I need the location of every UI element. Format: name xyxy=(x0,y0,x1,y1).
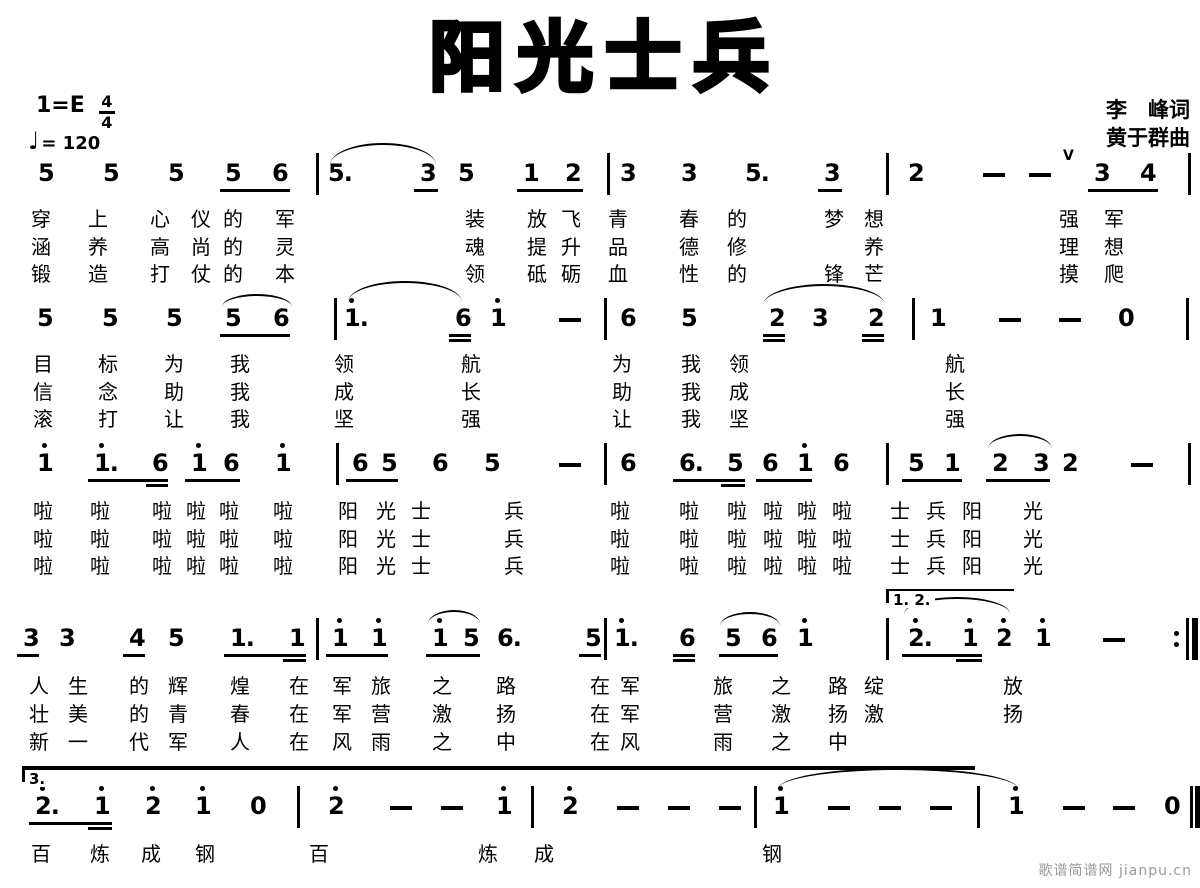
lyric-char: 助 xyxy=(164,381,184,403)
lyric-char: 高 xyxy=(150,236,170,258)
lyric-char: 领 xyxy=(334,353,354,375)
lyric-char: 阳 xyxy=(338,528,358,550)
octave-dot xyxy=(802,618,807,623)
lyric-char: 营 xyxy=(713,703,733,725)
lyric-char: 啦 xyxy=(90,500,110,522)
lyric-char: 春 xyxy=(679,208,699,230)
note: 2 xyxy=(868,307,884,329)
note: 1 xyxy=(37,452,53,474)
beam-line xyxy=(283,659,306,662)
note: 2 xyxy=(562,795,578,817)
lyric-char: 让 xyxy=(612,408,632,430)
octave-dot xyxy=(913,618,918,623)
beam-line xyxy=(29,822,112,825)
beam-line xyxy=(673,654,695,657)
lyric-char: 一 xyxy=(68,731,88,753)
lyric-char: 的 xyxy=(223,236,243,258)
note: 6 xyxy=(679,627,695,649)
note: 6. xyxy=(679,452,703,474)
barline xyxy=(604,618,607,660)
repeat-dot xyxy=(1174,631,1179,636)
note: 6 xyxy=(620,452,636,474)
duration-dash xyxy=(1029,173,1051,177)
lyric-char: 领 xyxy=(465,263,485,285)
duration-dash xyxy=(828,806,850,810)
barline xyxy=(1186,618,1189,660)
lyric-char: 啦 xyxy=(797,500,817,522)
lyric-char: 锋 xyxy=(824,263,844,285)
lyric-char: 营 xyxy=(371,703,391,725)
beam-line xyxy=(220,334,290,337)
lyric-char: 在 xyxy=(289,703,309,725)
lyric-char: 炼 xyxy=(90,843,110,865)
breath-mark: V xyxy=(1063,149,1074,163)
lyric-char: 修 xyxy=(727,236,747,258)
lyric-char: 兵 xyxy=(926,528,946,550)
lyric-char: 长 xyxy=(461,381,481,403)
lyric-char: 路 xyxy=(828,675,848,697)
lyric-char: 军 xyxy=(620,703,640,725)
lyric-char: 啦 xyxy=(610,555,630,577)
duration-dash xyxy=(617,806,639,810)
note: 5 xyxy=(103,162,119,184)
lyric-char: 啦 xyxy=(679,528,699,550)
lyric-char: 光 xyxy=(1023,500,1043,522)
lyric-char: 的 xyxy=(223,263,243,285)
beam-line xyxy=(719,654,778,657)
lyric-char: 啦 xyxy=(219,500,239,522)
lyric-char: 摸 xyxy=(1059,263,1079,285)
score-layer: 555565.3512335.3234V穿上心仪的军装放飞青春的梦想强军涵养高尚… xyxy=(0,0,1200,888)
lyric-char: 我 xyxy=(230,353,250,375)
note: 3 xyxy=(620,162,636,184)
octave-dot xyxy=(501,786,506,791)
lyric-char: 中 xyxy=(828,731,848,753)
volta-bracket: 3. xyxy=(22,766,975,785)
note: 6 xyxy=(432,452,448,474)
lyric-char: 在 xyxy=(590,731,610,753)
note: 1 xyxy=(191,452,207,474)
beam-line xyxy=(818,189,842,192)
lyric-char: 辉 xyxy=(168,675,188,697)
note: 5 xyxy=(585,627,601,649)
note: 5 xyxy=(727,452,743,474)
note: 1 xyxy=(432,627,448,649)
slur-arc xyxy=(348,281,462,302)
lyric-char: 阳 xyxy=(962,500,982,522)
lyric-char: 长 xyxy=(945,381,965,403)
lyric-char: 强 xyxy=(1059,208,1079,230)
lyric-char: 啦 xyxy=(33,555,53,577)
lyric-char: 兵 xyxy=(504,555,524,577)
lyric-char: 路 xyxy=(496,675,516,697)
beam-line xyxy=(763,334,785,337)
octave-dot xyxy=(567,786,572,791)
lyric-char: 钢 xyxy=(195,843,215,865)
duration-dash xyxy=(441,806,463,810)
note: 6 xyxy=(152,452,168,474)
lyric-char: 阳 xyxy=(338,555,358,577)
lyric-char: 啦 xyxy=(797,555,817,577)
lyric-char: 光 xyxy=(376,500,396,522)
lyric-char: 人 xyxy=(230,731,250,753)
lyric-char: 阳 xyxy=(962,555,982,577)
lyric-char: 士 xyxy=(411,500,431,522)
lyric-char: 成 xyxy=(334,381,354,403)
note: 5 xyxy=(225,307,241,329)
lyric-char: 养 xyxy=(864,236,884,258)
beam-line xyxy=(986,479,1050,482)
octave-dot xyxy=(42,443,47,448)
beam-line xyxy=(956,659,982,662)
lyric-char: 钢 xyxy=(762,843,782,865)
lyric-char: 仗 xyxy=(191,263,211,285)
lyric-char: 领 xyxy=(729,353,749,375)
note: 1 xyxy=(289,627,305,649)
lyric-char: 新 xyxy=(29,731,49,753)
lyric-char: 兵 xyxy=(504,528,524,550)
lyric-char: 啦 xyxy=(152,555,172,577)
lyric-char: 啦 xyxy=(33,500,53,522)
lyric-char: 人 xyxy=(29,675,49,697)
duration-dash xyxy=(983,173,1005,177)
duration-dash xyxy=(390,806,412,810)
beam-line xyxy=(414,189,438,192)
note: 5 xyxy=(168,162,184,184)
beam-line xyxy=(88,479,168,482)
beam-line xyxy=(673,479,745,482)
lyric-char: 爬 xyxy=(1104,263,1124,285)
lyric-char: 信 xyxy=(33,381,53,403)
note: 2 xyxy=(992,452,1008,474)
barline xyxy=(316,153,319,195)
beam-line xyxy=(902,654,982,657)
beam-line xyxy=(220,189,290,192)
lyric-char: 品 xyxy=(608,236,628,258)
lyric-char: 之 xyxy=(432,731,452,753)
note: 5 xyxy=(38,162,54,184)
note: 3 xyxy=(681,162,697,184)
octave-dot xyxy=(1040,618,1045,623)
note: 5 xyxy=(484,452,500,474)
note: 1 xyxy=(962,627,978,649)
lyric-char: 航 xyxy=(945,353,965,375)
beam-line xyxy=(902,479,962,482)
lyric-char: 啦 xyxy=(186,500,206,522)
lyric-char: 美 xyxy=(68,703,88,725)
lyric-char: 阳 xyxy=(962,528,982,550)
octave-dot xyxy=(99,786,104,791)
lyric-char: 上 xyxy=(88,208,108,230)
lyric-char: 扬 xyxy=(828,703,848,725)
barline xyxy=(912,298,915,340)
note: 1 xyxy=(332,627,348,649)
note: 6 xyxy=(352,452,368,474)
duration-dash xyxy=(930,806,952,810)
lyric-char: 标 xyxy=(98,353,118,375)
lyric-char: 军 xyxy=(168,731,188,753)
lyric-char: 念 xyxy=(98,381,118,403)
note: 5. xyxy=(745,162,769,184)
lyric-char: 士 xyxy=(890,528,910,550)
lyric-char: 啦 xyxy=(610,500,630,522)
note: 1. xyxy=(344,307,368,329)
lyric-char: 代 xyxy=(129,731,149,753)
note: 2 xyxy=(1062,452,1078,474)
lyric-char: 想 xyxy=(1104,236,1124,258)
barline xyxy=(1186,298,1189,340)
lyric-char: 旅 xyxy=(371,675,391,697)
lyric-char: 滚 xyxy=(33,408,53,430)
lyric-char: 的 xyxy=(727,208,747,230)
lyric-char: 的 xyxy=(129,675,149,697)
lyric-char: 造 xyxy=(88,263,108,285)
lyric-char: 成 xyxy=(141,843,161,865)
note: 1 xyxy=(94,795,110,817)
lyric-char: 我 xyxy=(681,408,701,430)
lyric-char: 青 xyxy=(608,208,628,230)
lyric-char: 啦 xyxy=(679,555,699,577)
lyric-char: 啦 xyxy=(727,528,747,550)
lyric-char: 打 xyxy=(98,408,118,430)
barline xyxy=(607,153,610,195)
watermark-site-link[interactable]: 歌谱简谱网 jianpu.cn xyxy=(1039,860,1192,880)
lyric-char: 士 xyxy=(890,500,910,522)
barline xyxy=(297,786,300,828)
lyric-char: 之 xyxy=(771,675,791,697)
note: 1 xyxy=(496,795,512,817)
lyric-char: 在 xyxy=(590,703,610,725)
lyric-char: 在 xyxy=(289,731,309,753)
beam-line xyxy=(224,654,306,657)
octave-dot xyxy=(99,443,104,448)
lyric-char: 飞 xyxy=(561,208,581,230)
lyric-char: 春 xyxy=(230,703,250,725)
duration-dash xyxy=(719,806,741,810)
note: 5 xyxy=(102,307,118,329)
note: 3 xyxy=(420,162,436,184)
duration-dash xyxy=(1059,318,1081,322)
lyric-char: 强 xyxy=(945,408,965,430)
lyric-char: 兵 xyxy=(926,555,946,577)
lyric-char: 士 xyxy=(411,528,431,550)
lyric-char: 魂 xyxy=(465,236,485,258)
note: 2 xyxy=(328,795,344,817)
duration-dash xyxy=(668,806,690,810)
note: 1 xyxy=(523,162,539,184)
octave-dot xyxy=(1001,618,1006,623)
duration-dash xyxy=(1113,806,1135,810)
lyric-char: 的 xyxy=(727,263,747,285)
barline xyxy=(886,618,889,660)
note: 2 xyxy=(996,627,1012,649)
barline xyxy=(604,443,607,485)
slur-arc xyxy=(330,143,436,165)
octave-dot xyxy=(333,786,338,791)
lyric-char: 风 xyxy=(332,731,352,753)
octave-dot xyxy=(280,443,285,448)
note: 3 xyxy=(812,307,828,329)
lyric-char: 啦 xyxy=(727,555,747,577)
note: 5 xyxy=(458,162,474,184)
lyric-char: 光 xyxy=(1023,528,1043,550)
lyric-char: 放 xyxy=(1003,675,1023,697)
note: 1 xyxy=(773,795,789,817)
lyric-char: 成 xyxy=(729,381,749,403)
beam-line xyxy=(185,479,240,482)
lyric-char: 啦 xyxy=(219,555,239,577)
beam-line xyxy=(579,654,601,657)
lyric-char: 梦 xyxy=(824,208,844,230)
lyric-char: 的 xyxy=(223,208,243,230)
rest-note: 0 xyxy=(250,795,266,817)
beam-line xyxy=(721,484,745,487)
octave-dot xyxy=(150,786,155,791)
duration-dash xyxy=(1063,806,1085,810)
note: 4 xyxy=(1140,162,1156,184)
duration-dash xyxy=(1131,463,1153,467)
note: 1 xyxy=(1008,795,1024,817)
note: 1. xyxy=(614,627,638,649)
note: 5. xyxy=(328,162,352,184)
beam-line xyxy=(862,334,884,337)
beam-line xyxy=(449,334,471,337)
note: 1 xyxy=(1035,627,1051,649)
lyric-char: 在 xyxy=(590,675,610,697)
lyric-char: 军 xyxy=(1104,208,1124,230)
lyric-char: 为 xyxy=(164,353,184,375)
lyric-char: 光 xyxy=(376,555,396,577)
note: 2. xyxy=(908,627,932,649)
note: 2 xyxy=(769,307,785,329)
lyric-char: 扬 xyxy=(496,703,516,725)
lyric-char: 的 xyxy=(129,703,149,725)
note: 3 xyxy=(59,627,75,649)
lyric-char: 百 xyxy=(309,843,329,865)
barline xyxy=(886,153,889,195)
lyric-char: 啦 xyxy=(832,500,852,522)
note: 6 xyxy=(761,627,777,649)
lyric-char: 啦 xyxy=(90,555,110,577)
note: 5 xyxy=(166,307,182,329)
lyric-char: 军 xyxy=(332,703,352,725)
lyric-char: 壮 xyxy=(29,703,49,725)
lyric-char: 啦 xyxy=(763,555,783,577)
note: 6 xyxy=(223,452,239,474)
duration-dash xyxy=(559,318,581,322)
beam-line xyxy=(517,189,583,192)
note: 5 xyxy=(908,452,924,474)
barline xyxy=(316,618,319,660)
barline xyxy=(886,443,889,485)
lyric-char: 为 xyxy=(612,353,632,375)
note: 3 xyxy=(824,162,840,184)
lyric-char: 本 xyxy=(275,263,295,285)
lyric-char: 军 xyxy=(332,675,352,697)
lyric-char: 养 xyxy=(88,236,108,258)
note: 3 xyxy=(23,627,39,649)
barline xyxy=(604,298,607,340)
rest-note: 0 xyxy=(1118,307,1134,329)
volta-label: 3. xyxy=(29,771,49,787)
beam-line xyxy=(449,339,471,342)
note: 5 xyxy=(463,627,479,649)
lyric-char: 灵 xyxy=(275,236,295,258)
beam-line xyxy=(862,339,884,342)
lyric-char: 啦 xyxy=(273,500,293,522)
lyric-char: 啦 xyxy=(832,555,852,577)
beam-line xyxy=(146,484,168,487)
beam-line xyxy=(88,827,112,830)
barline xyxy=(334,298,337,340)
note: 5 xyxy=(725,627,741,649)
slur-arc xyxy=(720,612,780,626)
lyric-char: 我 xyxy=(230,381,250,403)
lyric-char: 军 xyxy=(275,208,295,230)
lyric-char: 尚 xyxy=(191,236,211,258)
lyric-char: 士 xyxy=(890,555,910,577)
beam-line xyxy=(426,654,480,657)
lyric-char: 士 xyxy=(411,555,431,577)
lyric-char: 目 xyxy=(33,353,53,375)
octave-dot xyxy=(337,618,342,623)
lyric-char: 光 xyxy=(376,528,396,550)
lyric-char: 砺 xyxy=(561,263,581,285)
lyric-char: 理 xyxy=(1059,236,1079,258)
note: 1 xyxy=(195,795,211,817)
lyric-char: 兵 xyxy=(926,500,946,522)
note: 5 xyxy=(381,452,397,474)
lyric-char: 青 xyxy=(168,703,188,725)
lyric-char: 光 xyxy=(1023,555,1043,577)
lyric-char: 啦 xyxy=(186,555,206,577)
note: 5 xyxy=(37,307,53,329)
duration-dash xyxy=(1103,638,1125,642)
slur-arc xyxy=(428,610,480,624)
octave-dot xyxy=(495,298,500,303)
note: 4 xyxy=(129,627,145,649)
duration-dash xyxy=(559,463,581,467)
lyric-char: 砥 xyxy=(527,263,547,285)
note: 6 xyxy=(833,452,849,474)
note: 2 xyxy=(145,795,161,817)
lyric-char: 炼 xyxy=(478,843,498,865)
lyric-char: 啦 xyxy=(152,528,172,550)
note: 6 xyxy=(273,307,289,329)
lyric-char: 我 xyxy=(230,408,250,430)
note: 1 xyxy=(371,627,387,649)
lyric-char: 锻 xyxy=(31,263,51,285)
lyric-char: 我 xyxy=(681,353,701,375)
barline xyxy=(1190,786,1193,828)
barline xyxy=(977,786,980,828)
note: 1 xyxy=(930,307,946,329)
lyric-char: 生 xyxy=(68,675,88,697)
lyric-char: 风 xyxy=(620,731,640,753)
lyric-char: 啦 xyxy=(152,500,172,522)
slur-arc xyxy=(222,294,292,307)
lyric-char: 德 xyxy=(679,236,699,258)
lyric-char: 放 xyxy=(527,208,547,230)
lyric-char: 激 xyxy=(864,703,884,725)
lyric-char: 啦 xyxy=(33,528,53,550)
lyric-char: 啦 xyxy=(679,500,699,522)
note: 1 xyxy=(797,627,813,649)
note: 3 xyxy=(1033,452,1049,474)
lyric-char: 百 xyxy=(31,843,51,865)
volta-label: 1. 2. xyxy=(893,592,935,608)
octave-dot xyxy=(196,443,201,448)
